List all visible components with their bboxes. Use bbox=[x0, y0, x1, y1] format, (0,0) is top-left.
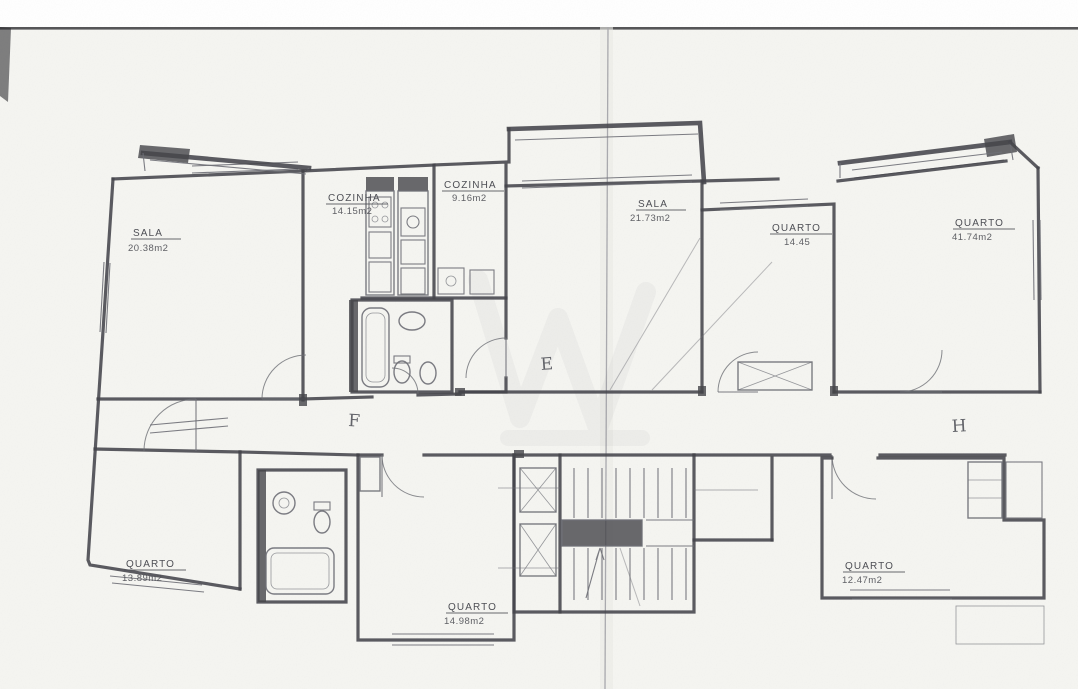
room-name: QUARTO bbox=[448, 602, 497, 613]
room-area: 9.16m2 bbox=[452, 193, 487, 204]
room-name: QUARTO bbox=[955, 218, 1004, 229]
room-name: COZINHA bbox=[444, 180, 497, 191]
room-area: 20.38m2 bbox=[128, 243, 168, 254]
room-name: COZINHA bbox=[328, 193, 381, 204]
scan-edge-line bbox=[0, 27, 1078, 30]
unit-letter-f: F bbox=[348, 411, 361, 432]
room-name: SALA bbox=[638, 199, 668, 210]
unit-letter-e: E bbox=[540, 354, 554, 375]
room-area: 21.73m2 bbox=[630, 213, 670, 224]
room-name: QUARTO bbox=[772, 223, 821, 234]
room-area: 14.45 bbox=[784, 237, 810, 248]
scanned-floorplan-page: SALA 20.38m2 COZINHA 14.15m2 COZINHA 9.1… bbox=[0, 0, 1078, 689]
floorplan-svg: SALA 20.38m2 COZINHA 14.15m2 COZINHA 9.1… bbox=[0, 0, 1078, 689]
room-area: 14.98m2 bbox=[444, 616, 484, 627]
room-area: 12.47m2 bbox=[842, 575, 882, 586]
room-name: QUARTO bbox=[126, 559, 175, 570]
stair-landing bbox=[562, 520, 642, 546]
room-name: SALA bbox=[133, 228, 163, 239]
room-area: 14.15m2 bbox=[332, 206, 372, 217]
room-area: 13.89m2 bbox=[122, 573, 162, 584]
room-name: QUARTO bbox=[845, 561, 894, 572]
unit-letter-h: H bbox=[951, 416, 967, 437]
room-area: 41.74m2 bbox=[952, 232, 992, 243]
